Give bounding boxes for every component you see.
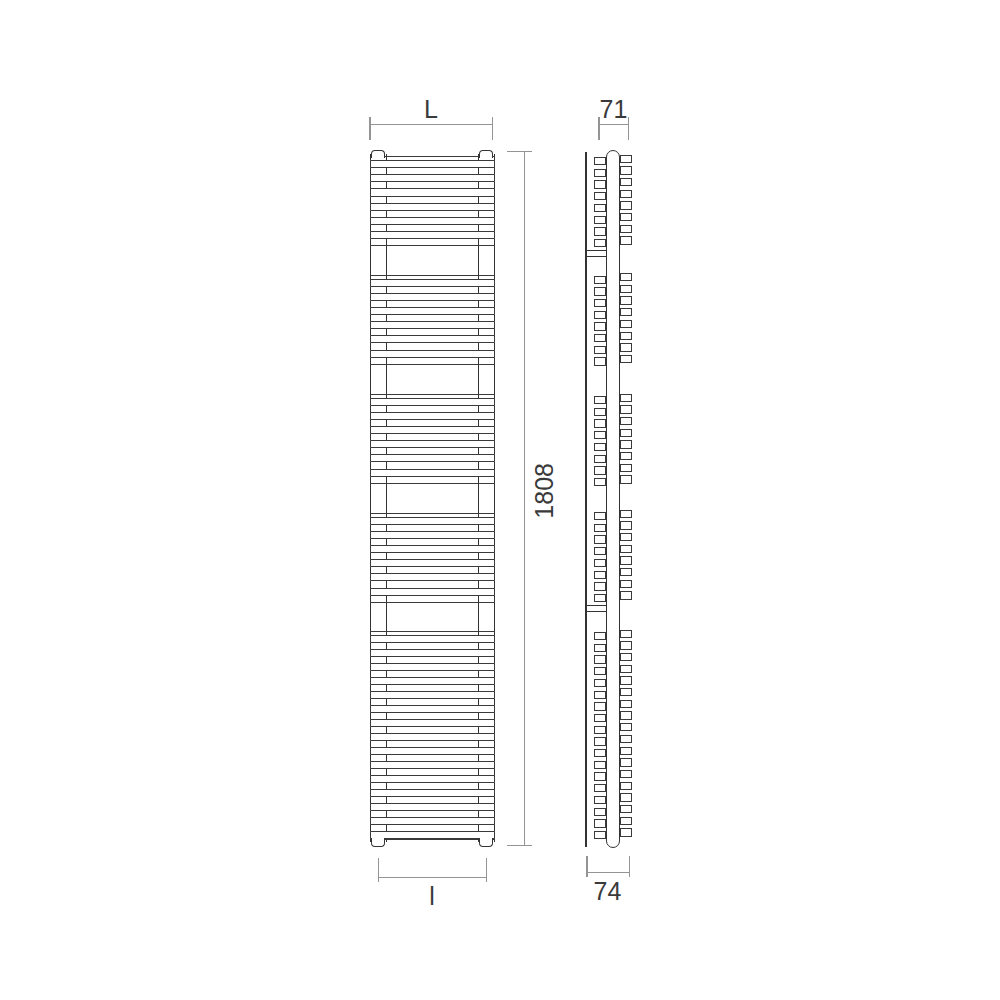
bar-end-square (594, 582, 606, 590)
dimension-tick (507, 151, 532, 152)
towel-bar (370, 831, 495, 839)
towel-bar (370, 160, 495, 168)
bar-end-square (594, 726, 606, 734)
bar-end-square (620, 464, 632, 472)
bar-end-square (594, 702, 606, 710)
towel-bar (370, 454, 495, 462)
bar-end-square (594, 535, 606, 543)
towel-bar (370, 677, 495, 685)
bar-end-square (594, 334, 606, 342)
rail-edge-line (370, 602, 495, 603)
tube-bottom-foot-left (371, 838, 385, 847)
dimension-line-overall-height (524, 152, 525, 846)
bar-end-square (620, 688, 632, 696)
bar-end-square (594, 216, 606, 224)
dimension-label-overall-width: L (370, 97, 492, 122)
bar-end-square (594, 819, 606, 827)
side-bar-ends-back (620, 148, 632, 850)
bar-end-square (620, 545, 632, 553)
side-bar-ends-front (594, 148, 606, 850)
bar-end-square (594, 796, 606, 804)
bar-end-square (620, 533, 632, 541)
bar-end-square (594, 749, 606, 757)
bar-end-square (594, 831, 606, 839)
bar-end-square (620, 166, 632, 174)
bar-end-square (594, 808, 606, 816)
bar-end-square (620, 568, 632, 576)
bar-end-square (594, 547, 606, 555)
bar-end-square (620, 405, 632, 413)
rail-edge-line (370, 483, 495, 484)
rail-edge-line (370, 245, 495, 246)
towel-bar (370, 279, 495, 287)
rail-edge-line (370, 364, 495, 365)
dimension-label-depth-top: 71 (598, 97, 629, 122)
dimension-label-connection-width: l (378, 884, 486, 909)
bar-end-square (620, 817, 632, 825)
bar-end-square (594, 594, 606, 602)
bar-end-square (594, 322, 606, 330)
bar-end-square (620, 723, 632, 731)
bar-end-square (620, 429, 632, 437)
dimension-line-overall-width (370, 124, 493, 125)
bar-end-square (594, 644, 606, 652)
tube-top-cap-left (371, 150, 385, 158)
bar-end-square (620, 556, 632, 564)
front-view-radiator (370, 148, 495, 848)
bar-end-square (620, 510, 632, 518)
bar-end-square (594, 239, 606, 247)
bar-end-square (620, 452, 632, 460)
bar-end-square (620, 190, 632, 198)
bar-end-square (620, 201, 632, 209)
bar-end-square (594, 761, 606, 769)
towel-bar (370, 517, 495, 525)
towel-bar (370, 635, 495, 643)
bar-end-square (594, 679, 606, 687)
towel-bar (370, 573, 495, 581)
towel-bar (370, 335, 495, 343)
towel-bar (370, 817, 495, 825)
towel-bar (370, 293, 495, 301)
bar-end-square (594, 346, 606, 354)
bar-end-square (620, 805, 632, 813)
bar-end-square (594, 396, 606, 404)
rail-edge-line (370, 394, 495, 395)
bar-end-square (620, 828, 632, 836)
towel-bar (370, 691, 495, 699)
bar-end-square (594, 524, 606, 532)
bar-end-square (620, 653, 632, 661)
towel-bar (370, 469, 495, 477)
side-collector-tube (606, 150, 620, 848)
towel-bar (370, 203, 495, 211)
bar-end-square (620, 758, 632, 766)
dimension-line-connection-width (379, 877, 487, 878)
bar-end-square (594, 772, 606, 780)
bar-end-square (620, 782, 632, 790)
dimension-tick (486, 858, 487, 882)
dimension-tick (378, 858, 379, 882)
bar-end-square (594, 276, 606, 284)
rail-edge-line (370, 156, 495, 157)
bar-end-square (594, 419, 606, 427)
bar-end-square (594, 737, 606, 745)
bar-end-square (620, 343, 632, 351)
bar-end-square (620, 591, 632, 599)
bar-end-square (620, 735, 632, 743)
towel-bar (370, 663, 495, 671)
tube-bottom-foot-right (479, 838, 493, 847)
towel-bar (370, 217, 495, 225)
dimension-tick (369, 117, 370, 140)
bar-end-square (620, 521, 632, 529)
towel-bar (370, 321, 495, 329)
bar-end-square (594, 667, 606, 675)
dimension-text: 1808 (532, 463, 557, 519)
bar-end-square (620, 676, 632, 684)
bar-end-square (620, 475, 632, 483)
rail-edge-line (370, 631, 495, 632)
rail-edge-line (370, 513, 495, 514)
dimension-label-depth-bottom: 74 (586, 879, 629, 904)
bar-end-square (620, 394, 632, 402)
towel-bar (370, 803, 495, 811)
bar-end-square (620, 700, 632, 708)
towel-bar (370, 545, 495, 553)
bar-end-square (594, 192, 606, 200)
bar-end-square (594, 180, 606, 188)
bar-end-square (620, 332, 632, 340)
bar-end-square (594, 169, 606, 177)
bar-end-square (594, 443, 606, 451)
bar-end-square (594, 512, 606, 520)
towel-bar (370, 733, 495, 741)
towel-bar (370, 531, 495, 539)
side-view-radiator (585, 148, 632, 850)
bar-end-square (594, 455, 606, 463)
bar-end-square (620, 225, 632, 233)
bar-end-square (620, 213, 632, 221)
dimension-line-depth-top (599, 124, 628, 125)
bar-end-square (620, 236, 632, 244)
towel-bar (370, 705, 495, 713)
bar-end-square (594, 357, 606, 365)
towel-bar (370, 398, 495, 406)
towel-bar (370, 307, 495, 315)
bar-end-square (594, 632, 606, 640)
bar-end-square (620, 440, 632, 448)
bar-end-square (620, 665, 632, 673)
dimension-tick (628, 117, 629, 140)
technical-drawing-canvas: L 71 1808 l 74 (0, 0, 1000, 1000)
bar-end-square (594, 714, 606, 722)
rail-edge-line (370, 275, 495, 276)
bar-end-square (620, 580, 632, 588)
towel-bar (370, 440, 495, 448)
bar-end-square (594, 227, 606, 235)
bar-end-square (620, 296, 632, 304)
bar-end-square (594, 311, 606, 319)
bar-end-square (594, 478, 606, 486)
bar-end-square (620, 770, 632, 778)
bar-end-square (594, 431, 606, 439)
bar-end-square (594, 408, 606, 416)
bar-end-square (594, 571, 606, 579)
rail-edge-line (370, 839, 495, 840)
dimension-tick (598, 117, 599, 140)
bar-end-square (620, 711, 632, 719)
bar-end-square (620, 273, 632, 281)
towel-bar (370, 231, 495, 239)
bar-end-square (620, 308, 632, 316)
bar-end-square (594, 655, 606, 663)
dimension-tick (507, 845, 532, 846)
dimension-tick (586, 856, 587, 877)
tube-top-cap-right (479, 150, 493, 158)
bar-end-square (620, 641, 632, 649)
bar-end-square (594, 784, 606, 792)
bar-end-square (620, 417, 632, 425)
towel-bar (370, 649, 495, 657)
towel-bar (370, 426, 495, 434)
towel-bar (370, 559, 495, 567)
bar-end-square (620, 155, 632, 163)
dimension-tick (629, 856, 630, 877)
bar-end-square (620, 320, 632, 328)
bar-end-square (620, 747, 632, 755)
bar-end-square (594, 287, 606, 295)
towel-bar (370, 412, 495, 420)
bar-end-square (620, 285, 632, 293)
bar-end-square (594, 157, 606, 165)
towel-bar (370, 188, 495, 196)
towel-bar (370, 775, 495, 783)
bar-end-square (620, 793, 632, 801)
towel-bar (370, 789, 495, 797)
towel-bar (370, 761, 495, 769)
towel-bar (370, 747, 495, 755)
dimension-tick (492, 117, 493, 140)
bar-end-square (594, 691, 606, 699)
bar-end-square (620, 178, 632, 186)
towel-bar (370, 350, 495, 358)
bar-end-square (594, 559, 606, 567)
bar-end-square (594, 466, 606, 474)
bar-end-square (594, 299, 606, 307)
bar-end-square (620, 355, 632, 363)
dimension-label-overall-height: 1808 (527, 423, 561, 559)
towel-bar (370, 588, 495, 596)
towel-bar (370, 174, 495, 182)
dimension-line-depth-bottom (587, 872, 630, 873)
bar-end-square (594, 204, 606, 212)
towel-bar (370, 719, 495, 727)
bar-end-square (620, 630, 632, 638)
